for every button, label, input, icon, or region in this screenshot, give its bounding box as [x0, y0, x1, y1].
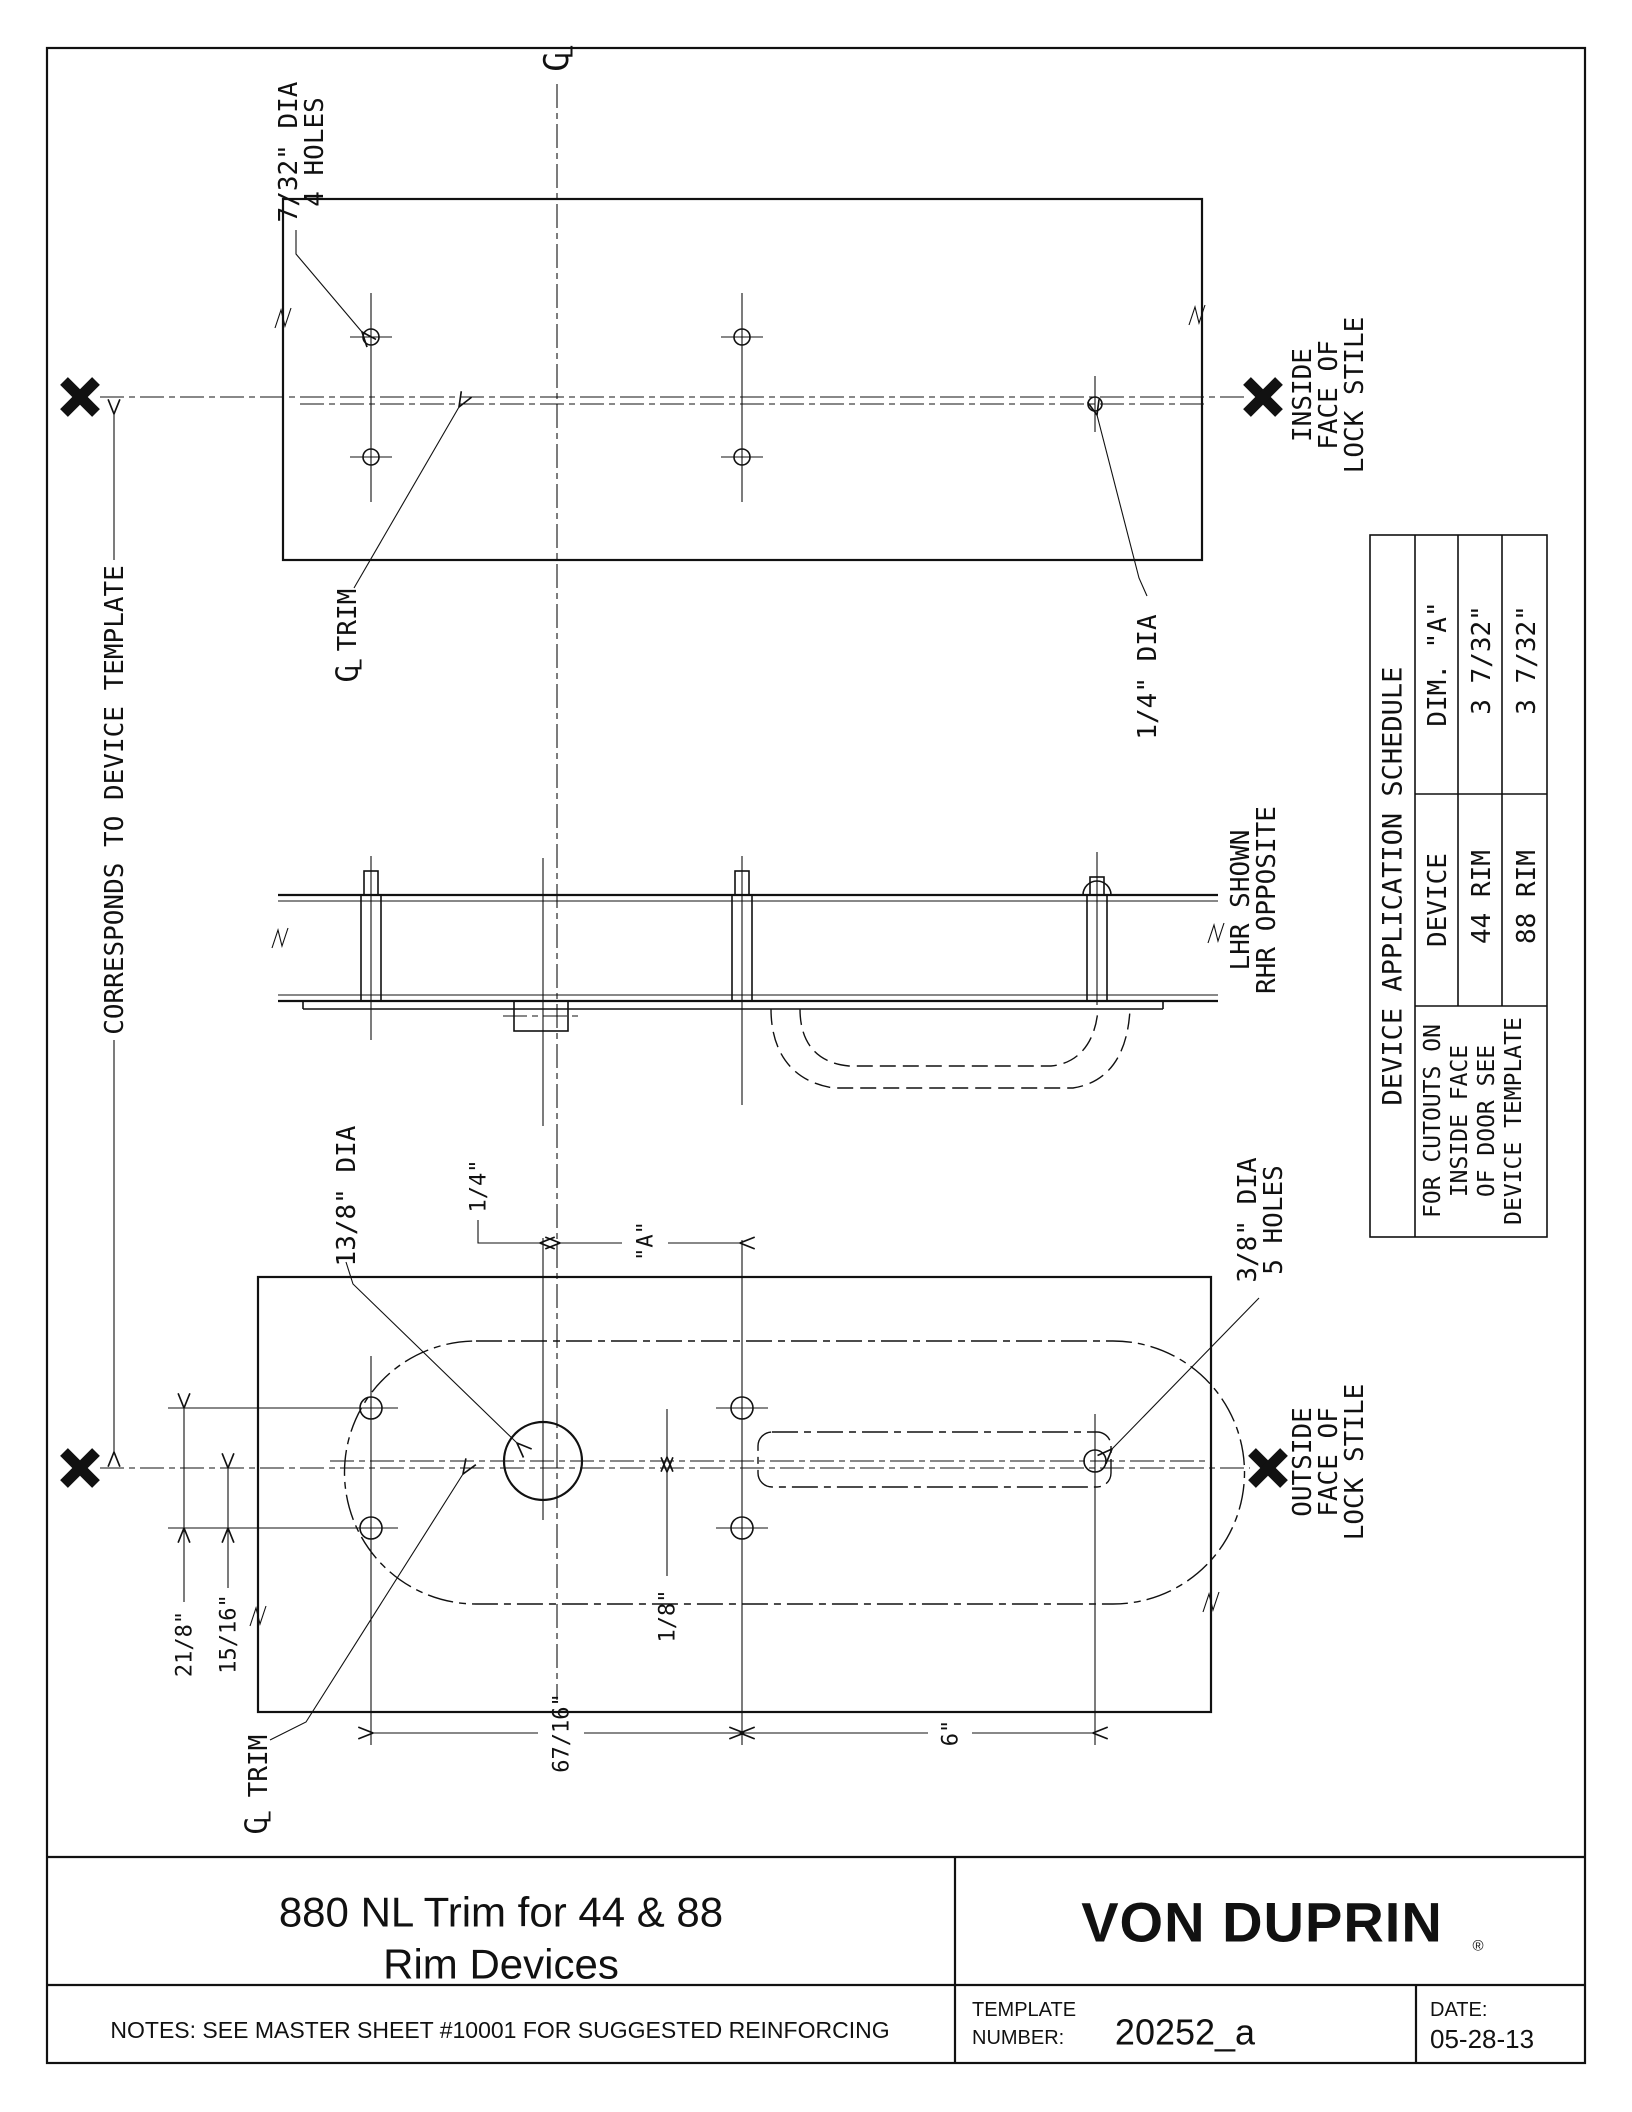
- schedule-cell: 88 RIM: [1512, 850, 1542, 944]
- break-mark-icon: [272, 928, 288, 948]
- leader-line: [270, 1474, 463, 1740]
- mounting-bolt: [361, 856, 381, 1040]
- leader-line: [1097, 415, 1147, 596]
- reference-x-mark: [64, 1452, 96, 1484]
- schedule-col-device: DEVICE: [1423, 853, 1453, 947]
- drawing-sheet: C L 7/32" DIA 4 HOLES: [0, 0, 1632, 2112]
- dimension-label: 1/8": [656, 1590, 681, 1643]
- notes-text: NOTES: SEE MASTER SHEET #10001 FOR SUGGE…: [110, 2017, 889, 2043]
- face-label: LOCK STILE: [1340, 317, 1370, 474]
- schedule-cell: 3 7/32": [1467, 605, 1497, 715]
- schedule-note-line: FOR CUTOUTS ON: [1420, 1024, 1446, 1218]
- dimension-label: 67/16": [550, 1693, 575, 1772]
- mounting-bolt: [732, 856, 752, 1105]
- template-number-label: TEMPLATE: [972, 1999, 1076, 2021]
- pull-handle-hidden: [771, 1009, 1130, 1088]
- template-number-label: NUMBER:: [972, 2027, 1064, 2049]
- side-view: LHR SHOWN RHR OPPOSITE: [272, 806, 1282, 1126]
- reference-x-mark: [1252, 1452, 1284, 1484]
- svg-text:L: L: [550, 45, 578, 59]
- schedule-title: DEVICE APPLICATION SCHEDULE: [1377, 667, 1408, 1106]
- trim-centerline-label: TRIM: [333, 589, 363, 652]
- face-label: LOCK STILE: [1340, 1384, 1370, 1541]
- dimension-line: [478, 1220, 498, 1243]
- centerline-symbol: C L: [240, 1810, 277, 1835]
- schedule-note-line: OF DOOR SEE: [1474, 1045, 1500, 1197]
- top-view: 7/32" DIA 4 HOLES C L TRIM 1/4" DIA INSI…: [64, 81, 1370, 739]
- handing-label: RHR OPPOSITE: [1252, 806, 1282, 994]
- drawing-title-line2: Rim Devices: [383, 1941, 619, 1988]
- trim-plate-outline: [345, 1341, 1245, 1604]
- application-schedule: DEVICE APPLICATION SCHEDULE DIM. "A" DEV…: [1370, 535, 1547, 1237]
- dimension-label: 1/4": [467, 1160, 492, 1213]
- dimension-label: 6": [939, 1720, 964, 1747]
- svg-text:L: L: [343, 658, 368, 671]
- dimension-label: 21/8": [173, 1611, 198, 1677]
- schedule-note-line: INSIDE FACE: [1447, 1045, 1473, 1197]
- schedule-cell: 44 RIM: [1467, 850, 1497, 944]
- brand-logo: VON DUPRIN: [1081, 1891, 1443, 1954]
- drawing-title-line1: 880 NL Trim for 44 & 88: [279, 1889, 723, 1936]
- hole-spec-label: 5 HOLES: [1259, 1165, 1289, 1275]
- registered-mark-icon: ®: [1472, 1937, 1483, 1954]
- date-label: DATE:: [1430, 1999, 1487, 2021]
- mounting-bolt-dome-head: [1083, 852, 1111, 1005]
- centerline-symbol: C L: [331, 658, 368, 683]
- leader-line: [296, 230, 362, 332]
- reference-x-mark: [64, 381, 96, 413]
- cylinder: [503, 858, 579, 1126]
- hole-dia-label: 1/4" DIA: [1133, 614, 1163, 740]
- corresponds-note: CORRESPONDS TO DEVICE TEMPLATE: [100, 414, 130, 1452]
- template-number-value: 20252_a: [1115, 2012, 1256, 2053]
- reference-x-mark: [1247, 381, 1279, 413]
- title-block: 880 NL Trim for 44 & 88 Rim Devices VON …: [47, 1857, 1585, 2063]
- hole-dia-label: 13/8" DIA: [332, 1125, 362, 1266]
- break-mark-icon: [1208, 923, 1224, 943]
- dimension-label: 15/16": [217, 1594, 242, 1673]
- svg-text:L: L: [252, 1810, 277, 1823]
- corresponds-note-text: CORRESPONDS TO DEVICE TEMPLATE: [100, 565, 130, 1035]
- date-value: 05-28-13: [1430, 2024, 1534, 2054]
- leader-line: [1112, 1298, 1259, 1449]
- dimension-label: "A": [634, 1221, 659, 1261]
- template-drawing: C L 7/32" DIA 4 HOLES: [0, 0, 1632, 2112]
- slot-cutout: [758, 1432, 1111, 1487]
- schedule-cell: 3 7/32": [1512, 605, 1542, 715]
- bottom-view: 21/8" 15/16" 1/8" 1/4" "A" 67/16" 6" 13/…: [64, 1125, 1370, 1835]
- trim-centerline-label: TRIM: [244, 1735, 274, 1798]
- hole-spec-label: 4 HOLES: [300, 97, 330, 207]
- leader-line: [346, 1262, 517, 1443]
- schedule-col-dim: DIM. "A": [1423, 601, 1453, 726]
- schedule-note-line: DEVICE TEMPLATE: [1501, 1017, 1527, 1225]
